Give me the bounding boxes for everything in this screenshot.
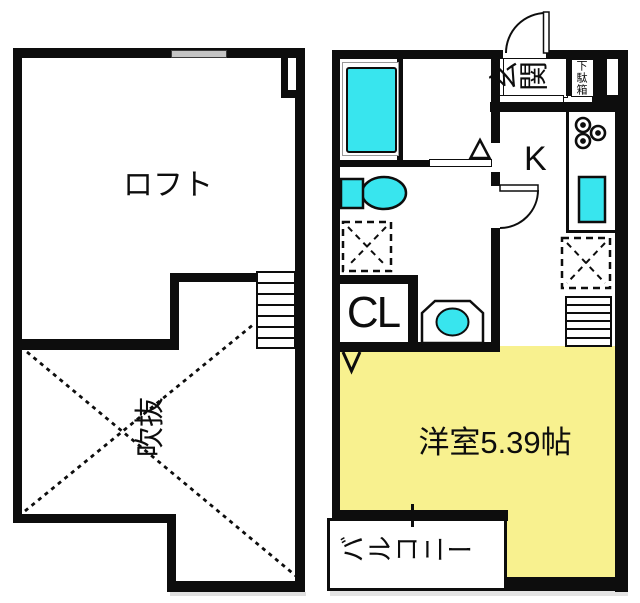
balcony-door-mark xyxy=(411,504,414,527)
entrance-label: 玄関 xyxy=(488,65,564,95)
sliding-door xyxy=(429,159,492,167)
wall-niche xyxy=(607,59,618,95)
western-room-label: 洋室5.39帖 xyxy=(375,427,615,458)
counter-edge xyxy=(566,230,615,233)
void-label: 吹抜 xyxy=(136,395,166,459)
shoe-cabinet-label: 下駄箱 xyxy=(575,60,586,96)
wall xyxy=(491,228,500,345)
kitchen-label: K xyxy=(524,142,547,176)
wall xyxy=(332,50,503,59)
wall-shadow xyxy=(330,591,628,596)
counter-edge xyxy=(566,112,569,233)
floorplan-canvas: ロフト 吹抜 玄関 下駄箱 K CL 洋室5.39帖 バルコニー xyxy=(0,0,640,603)
balcony-label: バルコニー xyxy=(339,539,481,566)
wall xyxy=(490,102,628,112)
wall xyxy=(408,275,418,352)
wall xyxy=(615,50,628,592)
wall xyxy=(332,160,429,167)
wall xyxy=(332,342,500,352)
loft-label: ロフト xyxy=(115,171,221,201)
wall xyxy=(332,50,340,521)
bathtub xyxy=(346,67,397,153)
wall xyxy=(332,275,418,284)
closet-label: CL xyxy=(338,291,408,335)
wall xyxy=(504,577,628,591)
wall xyxy=(491,172,500,186)
